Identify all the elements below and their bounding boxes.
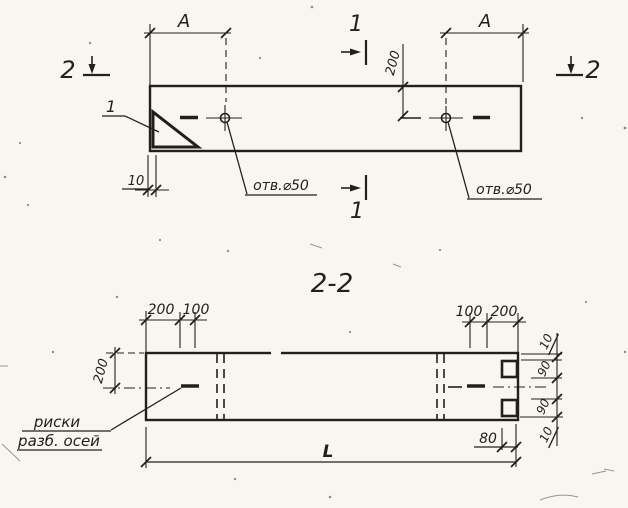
dim-a-right: A bbox=[440, 11, 529, 104]
chain-10-bottom-label: 10 bbox=[537, 424, 556, 444]
section-arrow-icon bbox=[350, 185, 361, 192]
section-mark-1-bottom: 1 bbox=[341, 175, 366, 224]
scan-break bbox=[271, 350, 281, 356]
beam-outline-section bbox=[146, 353, 518, 420]
drawing-sheet: A A 200 1 1 bbox=[0, 0, 628, 508]
scan-artifacts bbox=[0, 6, 626, 500]
chain-10-top-label: 10 bbox=[537, 331, 556, 351]
section-1-bottom-label: 1 bbox=[350, 199, 364, 224]
section-mark-2-left: 2 bbox=[60, 56, 110, 84]
section-2-right-label: 2 bbox=[585, 56, 600, 84]
axis-note-line2: разб. осей bbox=[17, 432, 100, 450]
dim-200-right-label: 200 bbox=[491, 304, 518, 320]
section-view: 2-2 200 100 bbox=[17, 269, 563, 468]
hole-left-text: отв.⌀50 bbox=[253, 178, 309, 194]
dim-a-left-label: A bbox=[177, 11, 190, 32]
section-arrow-icon bbox=[568, 64, 575, 74]
dim-10-edge: 10 bbox=[122, 155, 169, 197]
dim-200-offset-label: 200 bbox=[383, 49, 404, 77]
callout-1-label: 1 bbox=[106, 97, 116, 116]
section-arrow-icon bbox=[89, 64, 96, 74]
dim-right-chain: 10 90 90 10 bbox=[520, 328, 563, 448]
axis-note-line1: риски bbox=[33, 413, 81, 431]
dim-length-label: L bbox=[323, 442, 334, 462]
dim-length-L: L bbox=[141, 427, 521, 468]
dim-top-right: 100 200 bbox=[456, 304, 526, 352]
dim-80: 80 bbox=[474, 424, 521, 467]
dim-200-offset: 200 bbox=[383, 44, 408, 121]
chain-90-top-label: 90 bbox=[535, 358, 554, 378]
hole-label-left: отв.⌀50 bbox=[227, 122, 317, 195]
dim-10-label: 10 bbox=[128, 174, 145, 189]
hole-right bbox=[400, 106, 490, 131]
hole-label-right: отв.⌀50 bbox=[448, 122, 542, 199]
dim-80-label: 80 bbox=[479, 431, 497, 447]
dim-100-right-label: 100 bbox=[456, 304, 483, 320]
beam-outline-plan bbox=[150, 86, 521, 151]
dim-top-left: 200 100 bbox=[139, 302, 209, 352]
dim-a-right-label: A bbox=[478, 11, 491, 32]
joint-lines bbox=[217, 354, 444, 419]
top-view: A A 200 1 1 bbox=[60, 11, 600, 224]
section-arrow-icon bbox=[350, 49, 361, 56]
dim-100-left-label: 100 bbox=[183, 302, 210, 318]
section-title: 2-2 bbox=[311, 269, 353, 299]
drawing-canvas: A A 200 1 1 bbox=[0, 0, 628, 508]
section-2-left-label: 2 bbox=[60, 56, 75, 84]
hole-right-text: отв.⌀50 bbox=[476, 182, 532, 198]
embedded-plate-top bbox=[502, 361, 517, 377]
section-mark-1-top: 1 bbox=[341, 12, 366, 65]
dim-200-left-label: 200 bbox=[148, 302, 175, 318]
dim-height-200-label: 200 bbox=[91, 357, 112, 385]
dim-a-left: A bbox=[144, 11, 231, 102]
section-mark-2-right: 2 bbox=[556, 56, 601, 84]
embedded-plate-bottom bbox=[502, 400, 517, 416]
hole-left bbox=[180, 105, 242, 131]
section-1-top-label: 1 bbox=[349, 12, 363, 37]
